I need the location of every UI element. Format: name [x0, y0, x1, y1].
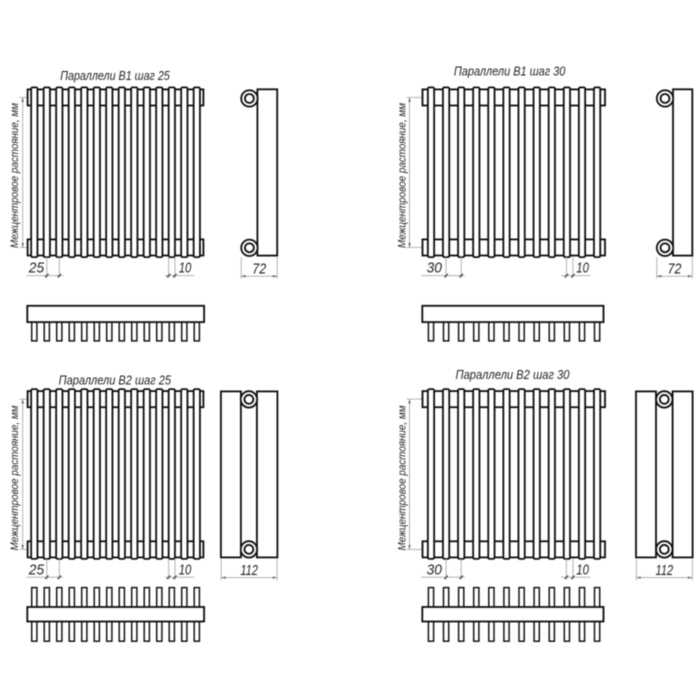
svg-text:10: 10: [576, 562, 589, 579]
svg-text:Параллели В1 шаг 25: Параллели В1 шаг 25: [60, 68, 170, 83]
svg-text:72: 72: [668, 260, 682, 277]
svg-text:Параллели В1 шаг 30: Параллели В1 шаг 30: [454, 63, 566, 78]
svg-text:25: 25: [28, 562, 45, 579]
svg-text:Межцентровое растояние, мм: Межцентровое растояние, мм: [9, 405, 21, 551]
svg-text:Межцентровое растояние, мм: Межцентровое растояние, мм: [397, 102, 409, 248]
svg-text:10: 10: [179, 562, 192, 579]
svg-text:Межцентровое растояние, мм: Межцентровое растояние, мм: [9, 102, 21, 248]
svg-text:30: 30: [427, 260, 443, 277]
svg-text:Параллели В2 шаг 25: Параллели В2 шаг 25: [59, 372, 172, 387]
svg-text:30: 30: [427, 562, 443, 579]
svg-text:10: 10: [179, 260, 192, 277]
svg-text:112: 112: [656, 562, 674, 579]
svg-text:Межцентровое растояние, мм: Межцентровое растояние, мм: [397, 405, 409, 551]
svg-text:72: 72: [252, 260, 266, 277]
svg-text:Параллели В2 шаг 30: Параллели В2 шаг 30: [456, 367, 571, 382]
svg-text:25: 25: [28, 260, 45, 277]
svg-text:112: 112: [240, 562, 258, 579]
svg-text:10: 10: [576, 260, 589, 277]
